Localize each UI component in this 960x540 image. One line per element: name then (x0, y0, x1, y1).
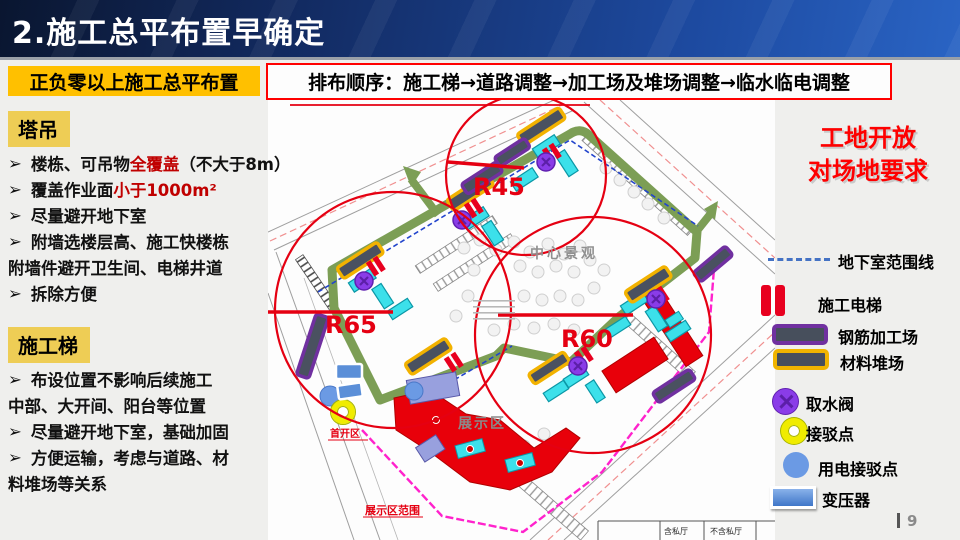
label-r60: R60 (561, 325, 613, 353)
tower-crane-list: ➢楼栋、可吊物全覆盖（不大于8m）➢覆盖作业面小于1000m²➢尽量避开地下室➢… (8, 152, 360, 308)
bullet-icon: ➢ (8, 281, 22, 307)
bullet-icon: ➢ (8, 151, 22, 177)
label-r65: R65 (325, 311, 377, 339)
legend-tap-point-icon (781, 418, 807, 444)
headline-line2: 对场地要求 (778, 155, 958, 188)
section-label-box: 正负零以上施工总平布置 (8, 66, 260, 96)
table-col2: 不含私厅 (710, 526, 742, 536)
legend-material-label: 材料堆场 (840, 350, 904, 374)
label-exhibit-area: 展示区 (458, 416, 506, 432)
bullet-icon: ➢ (8, 445, 22, 471)
legend-basement-line-icon (768, 258, 830, 261)
tower-crane-tag: 塔吊 (8, 111, 70, 147)
legend-water-valve-label: 取水阀 (806, 391, 854, 415)
bullet-line: ➢布设位置不影响后续施工 (8, 368, 360, 394)
legend-basement-line-label: 地下室范围线 (838, 249, 934, 273)
bullet-line: ➢尽量避开地下室 (8, 204, 360, 230)
bullet-line: ➢方便运输，考虑与道路、材 (8, 446, 360, 472)
legend-tap-point-label: 接驳点 (806, 421, 854, 445)
site-open-headline: 工地开放 对场地要求 (778, 122, 958, 188)
bullet-line: ➢拆除方便 (8, 282, 360, 308)
bullet-icon: ➢ (8, 203, 22, 229)
legend-power-tap-label: 用电接驳点 (818, 456, 898, 480)
legend-transformer-icon (770, 486, 816, 509)
arrangement-order-box: 排布顺序：施工梯→道路调整→加工场及堆场调整→临水临电调整 (266, 63, 892, 100)
bullet-icon: ➢ (8, 177, 22, 203)
bullet-line: 中部、大开间、阳台等位置 (8, 394, 360, 420)
legend-power-tap-icon (783, 452, 809, 478)
bullet-line: 料堆场等关系 (8, 472, 360, 498)
construction-elevator-tag: 施工梯 (8, 327, 90, 363)
legend-rebar-label: 钢筋加工场 (838, 324, 918, 348)
legend-material-icon (773, 349, 829, 370)
bullet-icon: ➢ (8, 367, 22, 393)
bullet-line: 附墙件避开卫生间、电梯井道 (8, 256, 360, 282)
slide: 2.施工总平布置早确定 正负零以上施工总平布置 排布顺序：施工梯→道路调整→加工… (0, 0, 960, 540)
bullet-icon: ➢ (8, 419, 22, 445)
bullet-line: ➢覆盖作业面小于1000m² (8, 178, 360, 204)
headline-line1: 工地开放 (778, 122, 958, 155)
label-r45: R45 (473, 173, 525, 201)
legend-transformer-label: 变压器 (822, 487, 870, 511)
header-bar: 2.施工总平布置早确定 (0, 0, 960, 60)
table-col1: 含私厅 (664, 526, 688, 536)
bullet-icon: ➢ (8, 229, 22, 255)
legend-water-valve-icon (772, 388, 799, 415)
legend-rebar-icon (772, 324, 828, 345)
page-number: 9 (897, 512, 917, 530)
bullet-line: ➢尽量避开地下室，基础加固 (8, 420, 360, 446)
bullet-line: ➢楼栋、可吊物全覆盖（不大于8m） (8, 152, 360, 178)
legend-elevator-label: 施工电梯 (818, 292, 882, 316)
construction-elevator-list: ➢布设位置不影响后续施工中部、大开间、阳台等位置➢尽量避开地下室，基础加固➢方便… (8, 368, 360, 498)
legend-elevator-icon (761, 285, 791, 317)
bullet-line: ➢附墙选楼层高、施工快楼栋 (8, 230, 360, 256)
label-center-landscape: 中心景观 (530, 245, 598, 262)
page-title: 2.施工总平布置早确定 (0, 0, 960, 52)
label-exhibit-range: 展示区范围 (364, 503, 420, 517)
